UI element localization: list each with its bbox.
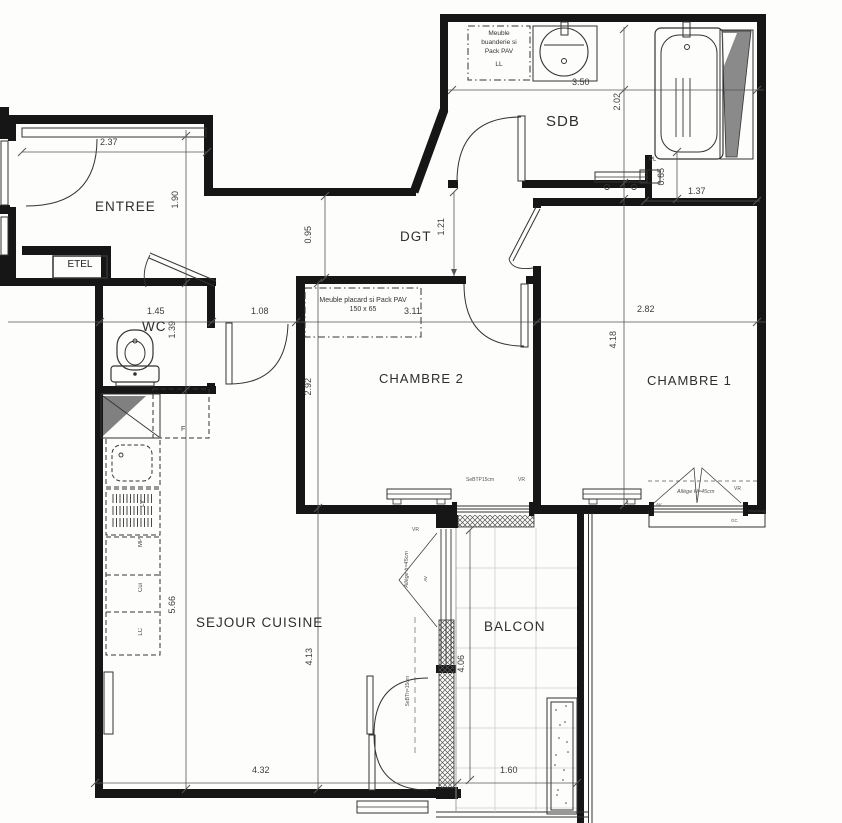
dim-1-08: 1.08 — [251, 307, 269, 316]
dim-4-32: 4.32 — [252, 766, 270, 775]
dim-4-13: 4.13 — [305, 648, 314, 666]
duct-gray — [720, 30, 753, 159]
kitchen-sink-icon — [106, 438, 160, 487]
thin-structure — [1, 128, 765, 823]
door-note-sejour: SeBTh=15cm — [406, 676, 411, 706]
lc-label: LC — [138, 628, 144, 636]
pl-label: PL — [649, 157, 656, 163]
dim-2-37: 2.37 — [100, 138, 118, 147]
room-label-sejour: SEJOUR CUISINE — [196, 616, 323, 630]
dim-0-65: 0.65 — [657, 168, 666, 186]
fixtures — [101, 22, 753, 813]
dim-1-60: 1.60 — [500, 766, 518, 775]
dim-1-90: 1.90 — [171, 191, 180, 209]
placard-note-line2: 150 x 65 — [306, 305, 420, 314]
av-label-sejour: AV — [424, 576, 429, 582]
placard-note: Meuble placard si Pack PAV 150 x 65 — [306, 296, 420, 315]
window-note-chambre2: SeBTP15cm — [466, 478, 494, 483]
floor-plan-drawing — [0, 0, 842, 823]
laundry-note-line3: Pack PAV — [469, 48, 529, 57]
room-label-wc: WC — [142, 320, 167, 334]
toilet-icon — [111, 330, 159, 386]
washbasin-icon — [533, 22, 597, 81]
planter — [547, 698, 577, 814]
dim-2-92: 2.92 — [304, 378, 313, 396]
etel-label: ETEL — [56, 260, 104, 270]
radiator-chambre1 — [583, 489, 641, 504]
room-label-dgt: DGT — [400, 230, 432, 244]
dim-3-50: 3.50 — [572, 78, 590, 87]
dishwasher-icon — [106, 489, 160, 535]
laundry-note-line4: LL — [469, 61, 529, 70]
dim-1-37: 1.37 — [688, 187, 706, 196]
gc-label: GC — [731, 519, 738, 524]
lv-label: LV — [140, 500, 146, 507]
room-label-chambre2: CHAMBRE 2 — [379, 372, 464, 385]
fridge-label: F — [181, 426, 185, 433]
window-note-sejour: Allège h=45cm — [405, 551, 411, 588]
dim-5-66: 5.66 — [168, 596, 177, 614]
cui-label: Cui — [138, 583, 144, 592]
mp-label: MP — [138, 538, 144, 547]
room-label-chambre1: CHAMBRE 1 — [647, 374, 732, 387]
laundry-note-line2: buanderie si — [469, 39, 529, 48]
window-note-chambre1: Allège H=45cm — [677, 490, 714, 496]
vr-label-chambre2: VR — [518, 478, 525, 483]
room-label-sdb: SDB — [546, 114, 580, 129]
dim-1-39: 1.39 — [168, 321, 177, 339]
vr-label-chambre1: VR — [734, 487, 741, 492]
dim-1-45: 1.45 — [147, 307, 165, 316]
placard-note-line1: Meuble placard si Pack PAV — [306, 296, 420, 305]
av-label-chambre1: AV — [656, 503, 662, 508]
radiator-chambre2 — [387, 489, 451, 504]
radiator-sejour — [357, 801, 428, 813]
laundry-note: Meuble buanderie si Pack PAV LL — [469, 30, 529, 70]
dim-1-21: 1.21 — [437, 218, 446, 236]
room-label-balcon: BALCON — [484, 620, 546, 634]
laundry-note-line1: Meuble — [469, 30, 529, 39]
dim-0-95: 0.95 — [304, 226, 313, 244]
dim-2-02: 2.02 — [613, 93, 622, 111]
corner-cabinet — [101, 394, 160, 438]
dim-4-06: 4.06 — [457, 655, 466, 673]
room-label-entree: ENTREE — [95, 200, 156, 214]
dim-2-82: 2.82 — [637, 305, 655, 314]
bathtub-icon — [655, 22, 723, 159]
floor-plan: ENTREE SDB DGT WC CHAMBRE 2 CHAMBRE 1 SE… — [0, 0, 842, 823]
vr-label-sejour: VR — [412, 528, 419, 533]
dim-4-18: 4.18 — [609, 331, 618, 349]
doors — [26, 116, 540, 790]
